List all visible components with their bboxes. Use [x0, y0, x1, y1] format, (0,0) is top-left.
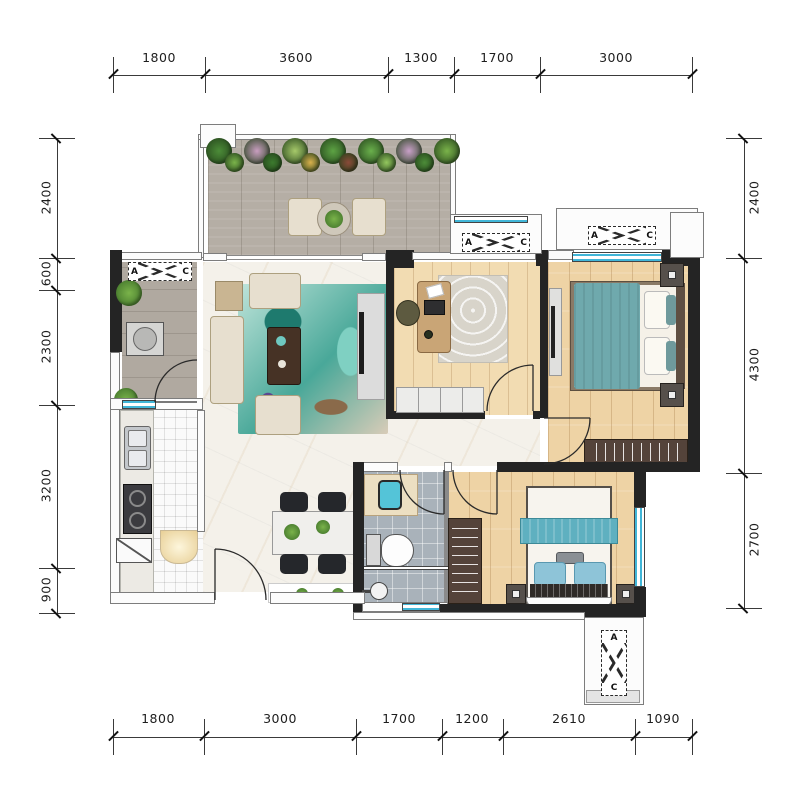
dim-label: 2700 [747, 512, 762, 568]
bathroom-window [402, 603, 440, 611]
balcony-armchair [352, 198, 386, 236]
ac-letter-c: C [646, 231, 653, 241]
dim-tick [692, 57, 693, 93]
dim-tick [503, 719, 504, 755]
balcony-plant [263, 153, 282, 172]
tv-screen [359, 312, 364, 374]
pillow [574, 562, 606, 586]
loveseat-sofa [249, 273, 301, 309]
exterior-ledge [353, 612, 585, 620]
dim-label: 2400 [39, 170, 54, 226]
washer-drum [133, 327, 157, 351]
utility-top-wall [116, 252, 202, 260]
dim-line [57, 138, 58, 613]
bay-window [454, 216, 528, 223]
bathroom-top-wall [362, 462, 398, 472]
nightstand [616, 584, 636, 604]
ac-letter-a: A [611, 633, 618, 643]
dim-tick [113, 57, 114, 93]
dim-tick [205, 57, 206, 93]
burner [129, 490, 146, 507]
desk-chair [396, 300, 420, 326]
bedroom3-blanket-band [520, 518, 618, 544]
ac-unit-symbol: A C [601, 630, 627, 696]
balcony-plant [415, 153, 434, 172]
ac-cross-icon [138, 263, 182, 280]
balcony-sliding-door [203, 255, 386, 260]
dining-chair [280, 492, 308, 512]
dim-label: 1800 [129, 50, 189, 65]
ac-cross-icon [598, 227, 646, 244]
desk-decor [424, 330, 433, 339]
wall-stub [203, 253, 227, 261]
table-plant [325, 210, 343, 228]
dim-tick [726, 138, 762, 139]
dim-tick [454, 57, 455, 93]
dining-plant [316, 520, 330, 534]
dim-line [744, 138, 745, 608]
master-bottom-wall [540, 462, 700, 472]
side-table [215, 281, 243, 311]
balcony-plant-row [206, 136, 452, 184]
accent-pillow [666, 341, 676, 371]
sink-basin [128, 430, 147, 447]
ac-cross-icon [602, 643, 626, 683]
dim-line [113, 75, 692, 76]
dim-label: 1700 [369, 711, 429, 726]
ac-letter-a: A [131, 267, 138, 277]
nightstand [506, 584, 526, 604]
dim-tick [388, 57, 389, 93]
master-left-wall [540, 262, 548, 418]
table-decor [278, 360, 286, 368]
pillow [534, 562, 566, 586]
armchair [255, 395, 301, 435]
bedroom3-right-wall [634, 466, 646, 507]
dim-label: 3200 [39, 458, 54, 514]
sofa [210, 316, 244, 404]
ac-unit-symbol: A C [462, 233, 530, 252]
dim-tick [356, 719, 357, 755]
dim-tick [540, 57, 541, 93]
master-right-wall [688, 250, 700, 470]
dim-label: 900 [39, 562, 54, 618]
corner-column [670, 212, 704, 258]
ac-letter-a: A [465, 238, 472, 248]
dim-tick [204, 719, 205, 755]
master-tv [551, 306, 555, 358]
ac-letter-a: A [591, 231, 598, 241]
utility-plant [116, 280, 142, 306]
sink-basin [128, 450, 147, 467]
balcony-plant [339, 153, 358, 172]
dining-chair [318, 554, 346, 574]
bedroom3-wardrobe [448, 518, 482, 604]
dim-label: 1800 [128, 711, 188, 726]
shower-divider [364, 566, 448, 570]
laptop [424, 300, 445, 315]
dim-label: 600 [39, 246, 54, 302]
dim-label: 2610 [539, 711, 599, 726]
dim-label: 2300 [39, 319, 54, 375]
nightstand [660, 383, 684, 407]
balcony-plant [225, 153, 244, 172]
refrigerator [116, 538, 152, 563]
master-bedroom-window [572, 252, 662, 262]
dining-plant [284, 524, 300, 540]
dim-tick [726, 473, 762, 474]
wall-nub [444, 462, 452, 472]
dining-chair [280, 554, 308, 574]
dim-label: 3000 [586, 50, 646, 65]
living-bedroom2-wall [386, 262, 394, 415]
dim-label: 4300 [747, 337, 762, 393]
nightstand [660, 263, 684, 287]
dim-tick [39, 138, 75, 139]
bedroom2-wardrobe [396, 387, 484, 413]
wall-nub [533, 411, 540, 419]
dim-label: 3000 [250, 711, 310, 726]
dim-tick [113, 719, 114, 755]
table-decor [276, 336, 286, 346]
ac-cross-icon [472, 234, 520, 251]
ac-unit-symbol: A C [128, 262, 192, 281]
accent-pillow [666, 295, 676, 325]
ac-letter-c: C [611, 683, 618, 693]
balcony-wall-left [198, 134, 204, 258]
dim-tick [726, 258, 762, 259]
bedroom3-window [634, 507, 645, 587]
balcony-plant [434, 138, 460, 164]
dim-tick [39, 405, 75, 406]
ac-unit-symbol: A C [588, 226, 656, 245]
toilet-bowl [381, 534, 414, 567]
dim-label: 1300 [391, 50, 451, 65]
kitchen-window [122, 400, 156, 409]
dim-label: 1090 [633, 711, 693, 726]
light-fixture [160, 530, 198, 564]
bottom-wall [270, 592, 365, 604]
bottom-wall [110, 592, 215, 604]
headboard [676, 283, 685, 389]
floor-plan-canvas: 1800 3600 1300 1700 3000 1800 3000 1700 … [0, 0, 800, 800]
dim-label: 1700 [467, 50, 527, 65]
shower-head [370, 582, 388, 600]
wall-stub [548, 250, 574, 260]
headboard-cushion [530, 584, 608, 598]
ac-letter-c: C [520, 238, 527, 248]
dim-label: 1200 [442, 711, 502, 726]
dim-label: 2400 [747, 170, 762, 226]
hallway-wall [497, 462, 540, 472]
coffee-table [267, 327, 301, 385]
ac-letter-c: C [182, 267, 189, 277]
kitchen-right-wall [197, 410, 205, 532]
toilet-tank [366, 534, 381, 566]
dining-chair [318, 492, 346, 512]
balcony-plant [377, 153, 396, 172]
master-blanket [574, 283, 640, 389]
bathroom-sink [378, 480, 402, 510]
dim-tick [726, 608, 762, 609]
wall-stub [362, 253, 386, 261]
balcony-plant [301, 153, 320, 172]
dim-label: 3600 [266, 50, 326, 65]
burner [129, 512, 146, 529]
